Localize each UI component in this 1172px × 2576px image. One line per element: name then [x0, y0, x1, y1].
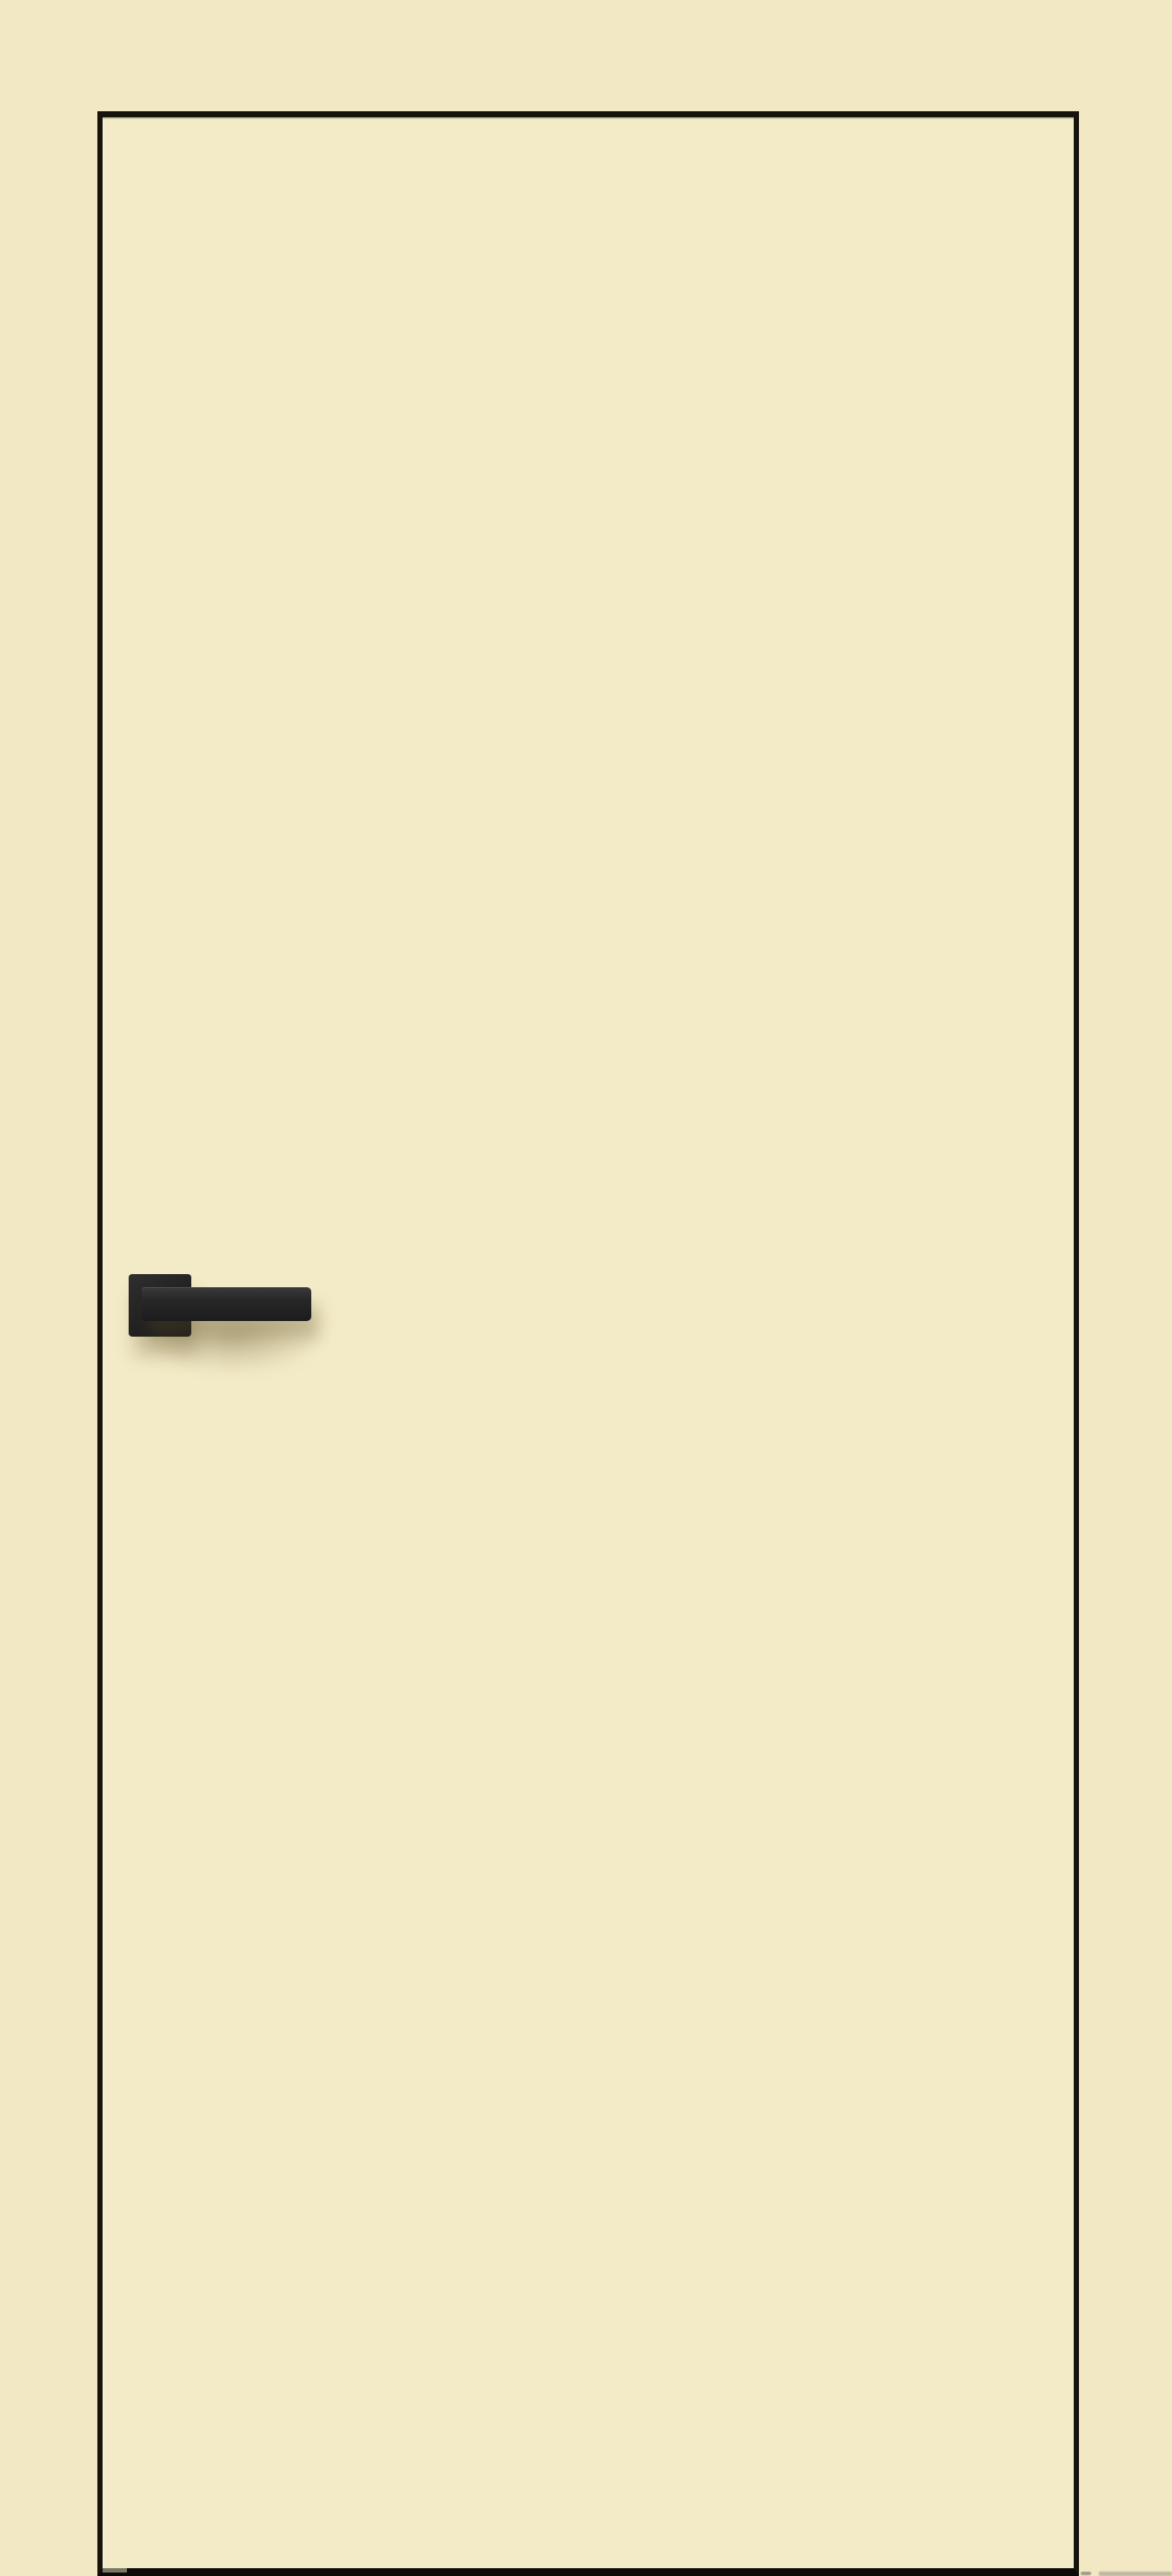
floor-smudge: [1081, 2572, 1091, 2575]
bottom-edge-highlight: [103, 2568, 127, 2573]
handle-lever: [142, 1287, 311, 1321]
studio-background: [0, 0, 1172, 2576]
door-leaf: [97, 111, 1079, 2576]
floor-smudge: [1099, 2572, 1172, 2576]
